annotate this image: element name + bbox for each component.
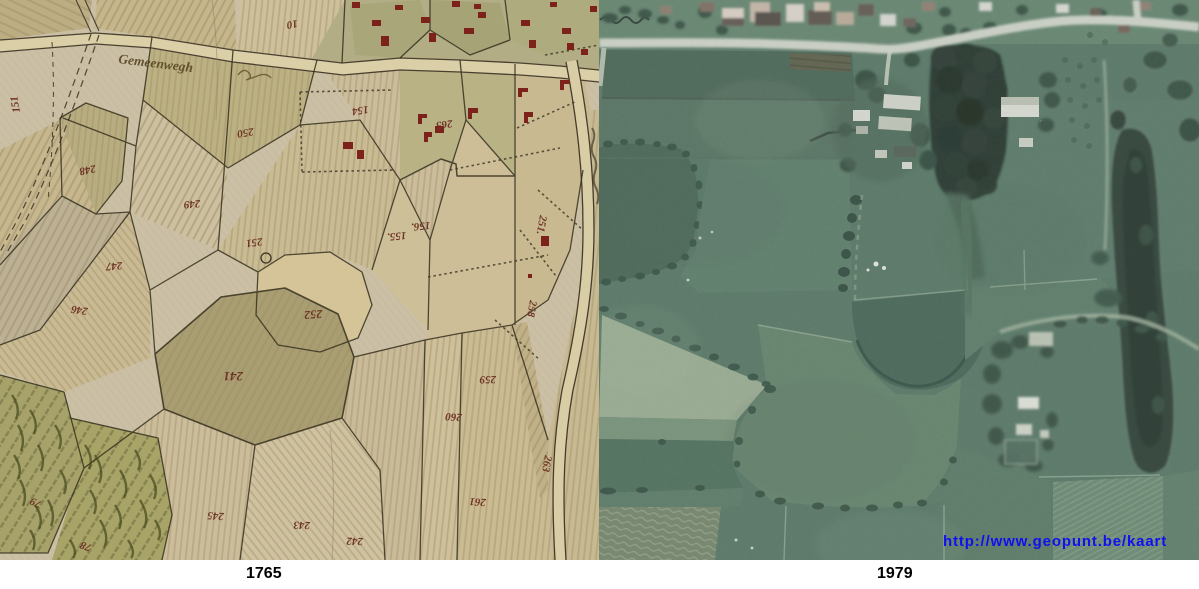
svg-text:260: 260 <box>445 410 464 423</box>
svg-text:252: 252 <box>304 307 324 322</box>
svg-text:156.: 156. <box>411 219 431 233</box>
svg-text:259: 259 <box>479 373 497 385</box>
svg-text:154: 154 <box>351 103 370 117</box>
svg-text:245: 245 <box>207 509 226 522</box>
svg-text:247: 247 <box>105 259 124 273</box>
svg-text:246: 246 <box>70 303 89 317</box>
svg-text:261: 261 <box>469 495 487 508</box>
svg-text:265: 265 <box>435 117 454 131</box>
svg-text:251: 251 <box>245 235 264 249</box>
svg-text:155.: 155. <box>387 229 407 243</box>
svg-text:243: 243 <box>293 519 311 531</box>
svg-text:242: 242 <box>346 535 364 547</box>
svg-text:241: 241 <box>224 369 245 384</box>
svg-text:249: 249 <box>183 197 202 211</box>
